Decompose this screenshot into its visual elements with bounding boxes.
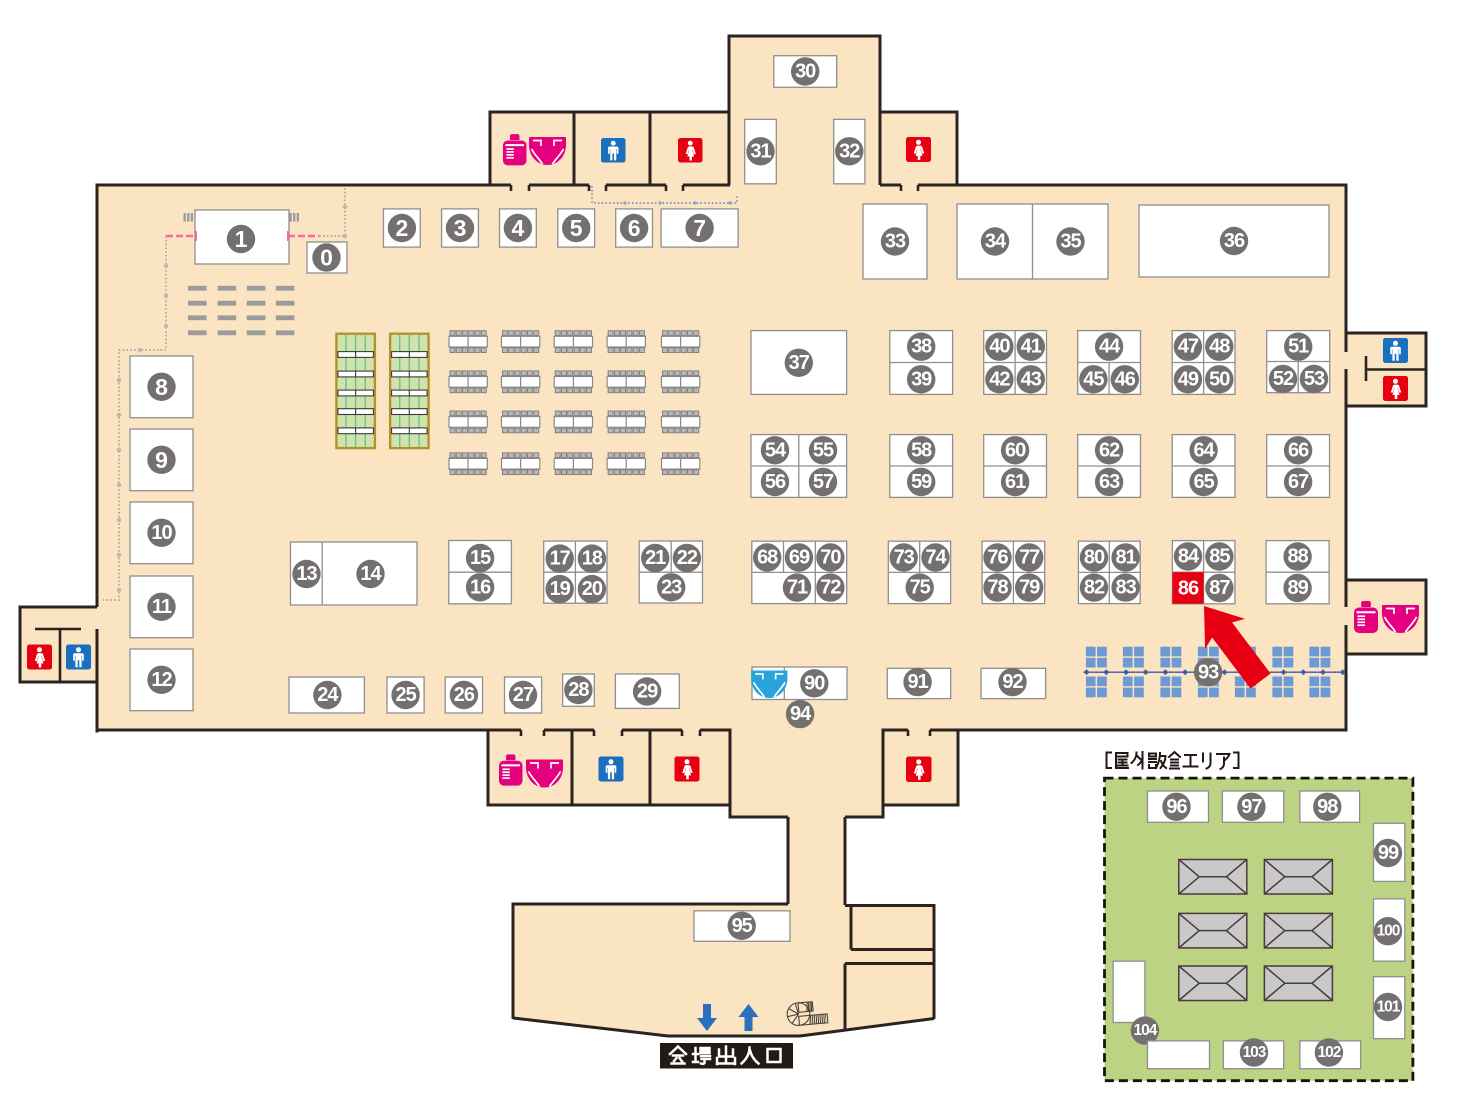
svg-text:55: 55	[813, 439, 834, 461]
svg-text:14: 14	[360, 563, 382, 585]
svg-text:102: 102	[1317, 1044, 1340, 1061]
svg-text:67: 67	[1288, 471, 1309, 493]
svg-text:99: 99	[1378, 842, 1399, 864]
svg-text:72: 72	[820, 577, 841, 599]
svg-text:31: 31	[750, 140, 771, 162]
svg-text:78: 78	[987, 577, 1008, 599]
svg-text:93: 93	[1198, 661, 1219, 683]
svg-text:68: 68	[757, 547, 778, 569]
svg-text:28: 28	[568, 679, 589, 701]
svg-text:83: 83	[1115, 577, 1136, 599]
svg-text:79: 79	[1019, 577, 1040, 599]
svg-text:95: 95	[732, 915, 753, 937]
svg-text:12: 12	[151, 669, 172, 691]
svg-text:62: 62	[1099, 439, 1120, 461]
svg-text:84: 84	[1178, 546, 1200, 568]
svg-text:40: 40	[989, 336, 1010, 358]
svg-text:39: 39	[911, 368, 932, 390]
svg-text:0: 0	[320, 245, 333, 271]
svg-text:42: 42	[989, 368, 1010, 390]
svg-text:91: 91	[907, 671, 928, 693]
svg-text:66: 66	[1288, 439, 1309, 461]
svg-text:45: 45	[1083, 368, 1104, 390]
svg-text:87: 87	[1209, 577, 1230, 599]
svg-text:18: 18	[582, 548, 603, 570]
svg-text:56: 56	[765, 471, 786, 493]
svg-text:61: 61	[1005, 471, 1026, 493]
svg-text:10: 10	[151, 522, 172, 544]
svg-text:58: 58	[911, 439, 932, 461]
svg-text:80: 80	[1084, 547, 1105, 569]
svg-text:100: 100	[1377, 923, 1400, 940]
svg-text:38: 38	[911, 336, 932, 358]
svg-text:37: 37	[789, 352, 810, 374]
svg-text:104: 104	[1133, 1022, 1157, 1039]
svg-text:90: 90	[804, 672, 825, 694]
svg-text:36: 36	[1224, 230, 1245, 252]
svg-text:89: 89	[1287, 577, 1308, 599]
svg-text:6: 6	[628, 215, 641, 241]
svg-text:4: 4	[512, 215, 525, 241]
svg-text:32: 32	[839, 140, 860, 162]
svg-text:60: 60	[1005, 439, 1026, 461]
svg-text:26: 26	[454, 684, 475, 706]
svg-text:9: 9	[155, 447, 168, 473]
svg-text:27: 27	[513, 684, 534, 706]
svg-text:53: 53	[1304, 368, 1325, 390]
svg-text:15: 15	[470, 547, 491, 569]
svg-text:20: 20	[582, 578, 603, 600]
svg-text:51: 51	[1288, 336, 1309, 358]
svg-text:88: 88	[1287, 546, 1308, 568]
svg-text:82: 82	[1084, 577, 1105, 599]
svg-text:43: 43	[1021, 368, 1042, 390]
svg-text:33: 33	[885, 231, 906, 253]
svg-text:52: 52	[1273, 368, 1294, 390]
svg-text:64: 64	[1193, 439, 1215, 461]
svg-text:17: 17	[550, 548, 571, 570]
svg-text:86: 86	[1178, 578, 1199, 600]
svg-text:77: 77	[1019, 547, 1040, 569]
svg-text:81: 81	[1115, 547, 1136, 569]
svg-text:2: 2	[396, 215, 409, 241]
svg-text:29: 29	[637, 681, 658, 703]
svg-text:16: 16	[470, 576, 491, 598]
svg-text:1: 1	[235, 226, 248, 252]
svg-text:92: 92	[1002, 671, 1023, 693]
svg-text:69: 69	[789, 547, 810, 569]
svg-text:34: 34	[985, 231, 1007, 253]
svg-text:57: 57	[813, 471, 834, 493]
svg-text:76: 76	[987, 547, 1008, 569]
svg-text:25: 25	[395, 684, 416, 706]
svg-text:50: 50	[1209, 368, 1230, 390]
svg-text:35: 35	[1060, 231, 1081, 253]
svg-text:8: 8	[155, 374, 168, 400]
svg-text:74: 74	[925, 547, 947, 569]
svg-text:46: 46	[1115, 368, 1136, 390]
svg-text:47: 47	[1178, 336, 1199, 358]
svg-text:48: 48	[1209, 336, 1230, 358]
svg-text:11: 11	[152, 596, 172, 618]
svg-text:97: 97	[1241, 796, 1262, 818]
svg-text:71: 71	[787, 577, 808, 599]
svg-text:23: 23	[661, 576, 682, 598]
svg-text:94: 94	[790, 703, 812, 725]
svg-text:101: 101	[1377, 999, 1401, 1016]
svg-text:13: 13	[296, 563, 317, 585]
svg-text:24: 24	[317, 684, 339, 706]
svg-text:49: 49	[1178, 368, 1199, 390]
svg-text:19: 19	[550, 578, 571, 600]
svg-text:103: 103	[1243, 1044, 1267, 1061]
svg-text:59: 59	[911, 471, 932, 493]
svg-text:7: 7	[693, 215, 706, 241]
svg-text:54: 54	[765, 439, 787, 461]
svg-text:22: 22	[677, 547, 698, 569]
svg-text:63: 63	[1099, 471, 1120, 493]
svg-text:96: 96	[1166, 796, 1187, 818]
svg-text:98: 98	[1317, 796, 1338, 818]
svg-text:70: 70	[820, 547, 841, 569]
svg-text:41: 41	[1021, 336, 1042, 358]
svg-text:75: 75	[910, 577, 931, 599]
svg-text:21: 21	[645, 547, 666, 569]
svg-text:3: 3	[454, 215, 467, 241]
svg-text:65: 65	[1193, 471, 1214, 493]
svg-text:85: 85	[1209, 546, 1230, 568]
svg-text:73: 73	[894, 547, 915, 569]
svg-text:5: 5	[570, 215, 583, 241]
svg-text:44: 44	[1099, 336, 1121, 358]
svg-text:30: 30	[795, 61, 816, 83]
